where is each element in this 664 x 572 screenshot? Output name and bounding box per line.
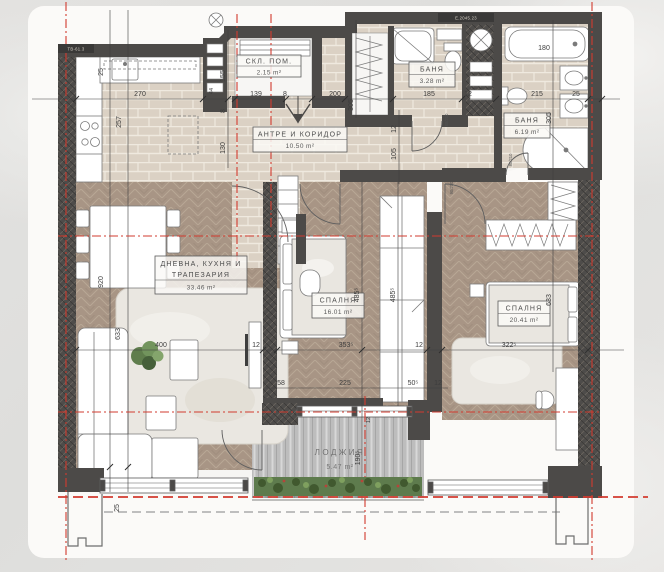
dim: 25 (572, 91, 580, 98)
window-bedroom2-bottom (428, 480, 548, 495)
bedroom1-wardrobe (380, 196, 424, 402)
room-name: БАНЯ (420, 67, 444, 74)
dim: 920 (98, 276, 105, 288)
pillow (283, 290, 292, 330)
wall-bedroom1-top (340, 170, 444, 182)
wall-bedroom2-top-left (442, 168, 506, 182)
dim: 8 (283, 91, 287, 98)
room-name: СКЛ. ПОМ. (246, 59, 293, 66)
dim: 257 (116, 116, 123, 128)
dim: 105 (391, 148, 398, 160)
bath2-toilet (500, 87, 527, 105)
room-area: 5.47 m² (326, 464, 353, 471)
dim: 139 (250, 91, 262, 98)
wall-top-storage (224, 26, 347, 38)
exterior-wall-right-lower (578, 180, 600, 470)
dim: 485⁵ (354, 288, 361, 303)
room-label-bath2: БАНЯ 6.19 m² (504, 113, 550, 138)
wall-bottom-left-block (58, 468, 104, 492)
door-size-tag: 80/210 (444, 113, 449, 126)
room-label-storage: СКЛ. ПОМ. 2.15 m² (237, 55, 301, 77)
room-name-line1: ДНЕВНА, КУХНЯ И (160, 261, 241, 268)
room-area: 20.41 m² (510, 317, 539, 324)
dim: 633 (115, 328, 122, 340)
dim: 633 (546, 294, 553, 306)
dim: 44 (209, 88, 215, 94)
room-name: СПАЛНЯ (506, 306, 543, 313)
dim: 485⁵ (390, 288, 397, 303)
dim: 12 (464, 91, 472, 98)
room-label-bath1: БАНЯ 3.28 m² (409, 62, 455, 87)
dim: 200 (329, 91, 341, 98)
door-size-tag: 90/210 (449, 181, 454, 194)
dim: 130 (220, 142, 227, 154)
room-name: СПАЛНЯ (320, 298, 357, 305)
room-area: 3.28 m² (420, 78, 445, 85)
storage-shelves (240, 40, 310, 56)
floor-plan-canvas: ТВ-61.3 Е.2045.23 СКЛ. ПОМ. 2.15 m² АНТР… (0, 0, 664, 572)
wall-bottom-right-block (548, 466, 602, 498)
room-name: АНТРЕ И КОРИДОР (258, 132, 342, 139)
room-area: 6.19 m² (515, 129, 540, 136)
room-label-hall: АНТРЕ И КОРИДОР 10.50 m² (253, 127, 347, 152)
wall-tag-left: ТВ-61.3 (68, 47, 85, 52)
dim: 353⁵ (339, 342, 354, 349)
wall-closet-nook (296, 214, 306, 264)
dim: 305 (348, 99, 355, 111)
wall-bath2-bottom (528, 168, 602, 180)
room-area: 16.01 m² (324, 309, 353, 316)
dim: 58 (277, 380, 285, 387)
room-area: 10.50 m² (286, 143, 315, 150)
dim: 322⁵ (502, 342, 517, 349)
armchair (300, 270, 320, 296)
room-name: БАНЯ (515, 118, 539, 125)
dim: 190⁵ (355, 451, 362, 466)
dim: 50⁵ (408, 380, 419, 387)
dim: 8 (220, 109, 227, 113)
dim-bathtub-length: 180 (538, 45, 550, 52)
bathtub (505, 27, 589, 61)
dim: 12 (415, 342, 423, 349)
nightstand (282, 341, 298, 354)
wall-loggia-left-block (262, 403, 298, 425)
pillow (568, 317, 577, 342)
dim: 225 (339, 380, 351, 387)
wall-bath2-left (494, 24, 502, 168)
bath1-sink (437, 29, 462, 40)
dim: 25 (114, 504, 121, 512)
pillow (283, 244, 292, 284)
room-name-line2: ТРАПЕЗАРИЯ (172, 272, 230, 279)
wall-bath1-bottom-left (345, 115, 412, 127)
dim: 270 (134, 91, 146, 98)
room-area: 2.15 m² (257, 70, 282, 77)
stove (76, 116, 102, 154)
dim: 400 (155, 342, 167, 349)
wall-tag-top: Е.2045.23 (455, 16, 477, 21)
wall-living-bedroom1 (263, 182, 277, 398)
bath1-shower (392, 28, 434, 64)
nightstand (470, 284, 484, 297)
dim: 185 (423, 91, 435, 98)
window-living-bottom (100, 478, 248, 493)
exterior-wall-left (58, 44, 76, 490)
tv-cabinet (249, 322, 261, 388)
dim: 12 (252, 342, 260, 349)
pillow (568, 287, 577, 312)
wall-storage-right (312, 26, 322, 108)
dim: 155 (220, 70, 227, 82)
dim: 305 (546, 112, 553, 124)
dim: 12 (366, 417, 372, 423)
dim: 215 (531, 91, 543, 98)
dim: 12 (434, 380, 442, 387)
coffee-table-1 (170, 340, 198, 380)
room-area: 33.46 m² (187, 285, 216, 292)
coffee-table-2 (146, 396, 176, 430)
exterior-wall-right-upper (588, 12, 602, 180)
door-size-tag: 80/210 (508, 153, 513, 166)
room-label-bedroom2: СПАЛНЯ 20.41 m² (498, 301, 550, 326)
dim: 25 (98, 68, 105, 76)
dim: 12 (391, 125, 398, 133)
desk-chair-back (536, 391, 542, 409)
faucet-icon (123, 62, 126, 65)
room-label-living: ДНЕВНА, КУХНЯ И ТРАПЕЗАРИЯ 33.46 m² (155, 256, 247, 294)
side-table (152, 438, 198, 478)
loggia-planter (254, 477, 422, 496)
